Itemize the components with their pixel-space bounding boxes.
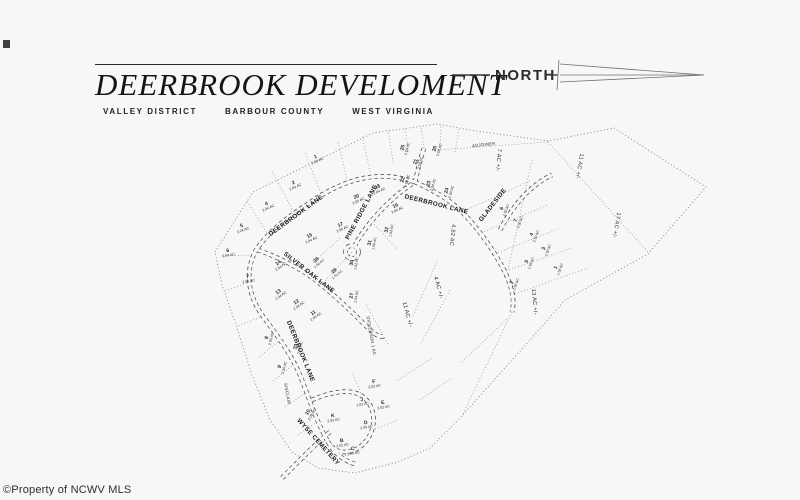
parcel-label: 321.53 AC — [383, 223, 395, 238]
parcel-acreage: 2.03 AC — [268, 332, 275, 346]
parcel-label: 62.04 AC — [221, 247, 236, 259]
parcel-label: J1.02 AC — [355, 396, 370, 408]
parcel-acreage: 2.02 AC — [327, 417, 341, 423]
parcel-acreage: 1.56 AC — [527, 256, 535, 270]
owner-label: SINCLAIR — [283, 383, 292, 405]
development-boundary — [215, 124, 706, 473]
parcel-label: 51.56 AC — [522, 254, 535, 270]
parcel-label: 92.04 AC — [275, 359, 287, 374]
owner-label: ADJOINER — [472, 141, 496, 148]
parcel-label: K2.02 AC — [326, 412, 341, 424]
parcel-label: 22.04 AC — [287, 178, 303, 192]
parcel-label: 112.05 AC — [306, 307, 322, 322]
acreage-label: 4.52 AC — [448, 224, 456, 246]
road-name-label: DEERBROOK LANE — [404, 193, 469, 216]
road-outlines — [249, 148, 552, 478]
parcel-acreage: 2.04 AC — [281, 361, 288, 375]
watermark: ©Property of NCWV MLS — [3, 484, 131, 496]
parcel-acreage: 2.50 AC — [404, 142, 411, 156]
parcel-acreage: 2.00 AC — [347, 450, 361, 456]
parcel-label: 102.08 AC — [302, 405, 317, 421]
parcel-acreage: 2.50 AC — [417, 156, 424, 170]
parcel-acreage: 2.04 AC — [289, 182, 303, 191]
parcel-acreage: 2.02 AC — [377, 404, 391, 410]
parcel-acreage: 1.02 AC — [356, 401, 370, 407]
road-name-label: DEERBROOK LANE — [268, 194, 325, 238]
acreage-label: 7 AC +/- — [494, 148, 502, 171]
parcel-acreage: 1.50 AC — [544, 243, 552, 257]
parcel-label: 271.54 AC — [348, 289, 360, 304]
parcel-label: 262.50 AC — [430, 141, 442, 156]
parcel-label: 11.56 AC — [551, 260, 564, 276]
parcel-label: 132.04 AC — [271, 286, 287, 301]
parcel-label: 281.50 AC — [310, 254, 326, 270]
parcel-acreage: 2.02 AC — [368, 383, 382, 389]
acreage-label: 13 AC +/- — [530, 289, 538, 316]
parcel-acreage: 2.04 AC — [262, 203, 276, 212]
parcel-acreage: 2.02 AC — [336, 442, 350, 448]
parcel-acreage: 2.04 AC — [222, 252, 236, 258]
acreage-label: 11 AC +/- — [401, 302, 413, 328]
parcel-acreage: 2.50 AC — [532, 229, 540, 243]
parcel-acreage: 1.54 AC — [353, 290, 359, 304]
parcel-acreage: 1.52 AC — [353, 257, 359, 271]
parcel-label: F2.02 AC — [367, 378, 382, 390]
parcel-label: 152.04 AC — [303, 231, 319, 245]
acreage-label: 17 AC +/- — [611, 212, 621, 239]
parcel-label: 52.04 AC — [235, 221, 251, 234]
parcel-acreage: 1.50 AC — [371, 237, 377, 251]
parcel-label: 42.50 AC — [527, 227, 540, 243]
acreage-label: 11 AC +/- — [574, 153, 584, 179]
parcel-acreage: 2.50 AC — [311, 156, 325, 165]
parcel-acreage: 2.04 AC — [448, 185, 455, 199]
parcel-label: 311.50 AC — [366, 236, 378, 251]
parcel-label: 252.50 AC — [398, 140, 410, 155]
parcel-acreage: 1.53 AC — [388, 224, 394, 238]
parcel-label: 122.04 AC — [289, 296, 305, 311]
parcel-label: 42.04 AC — [260, 199, 276, 213]
parcel-boundary-lines — [220, 126, 648, 470]
road-centers — [249, 148, 552, 478]
plat-map-svg: 12.50 AC22.04 AC42.04 AC52.04 AC62.04 AC… — [0, 0, 800, 500]
acreage-label: 4 AC +/- — [432, 276, 444, 300]
parcel-label: 12.50 AC — [309, 152, 325, 166]
road-name-label: SILVER OAK LANE — [282, 251, 336, 295]
parcel-acreage: 2.50 AC — [512, 277, 520, 291]
parcel-acreage: 2.04 AC — [236, 226, 250, 234]
parcel-label: B2.02 AC — [335, 437, 350, 449]
parcel-label: 31.50 AC — [539, 241, 552, 257]
parcel-acreage: 2.04 AC — [430, 178, 437, 192]
plat-map-page: { "page": { "background": "#f7f7f5", "wa… — [0, 0, 800, 500]
map-labels-layer: 12.50 AC22.04 AC42.04 AC52.04 AC62.04 AC… — [221, 140, 621, 467]
road-name-label: GLADESIDE — [478, 187, 508, 223]
parcel-acreage: 2.50 AC — [516, 215, 524, 229]
parcel-label: 72.06 AC — [241, 273, 256, 285]
parcel-label: 291.51 AC — [328, 265, 344, 281]
parcel-label: E2.02 AC — [376, 399, 391, 411]
parcel-acreage: 1.56 AC — [556, 262, 564, 276]
